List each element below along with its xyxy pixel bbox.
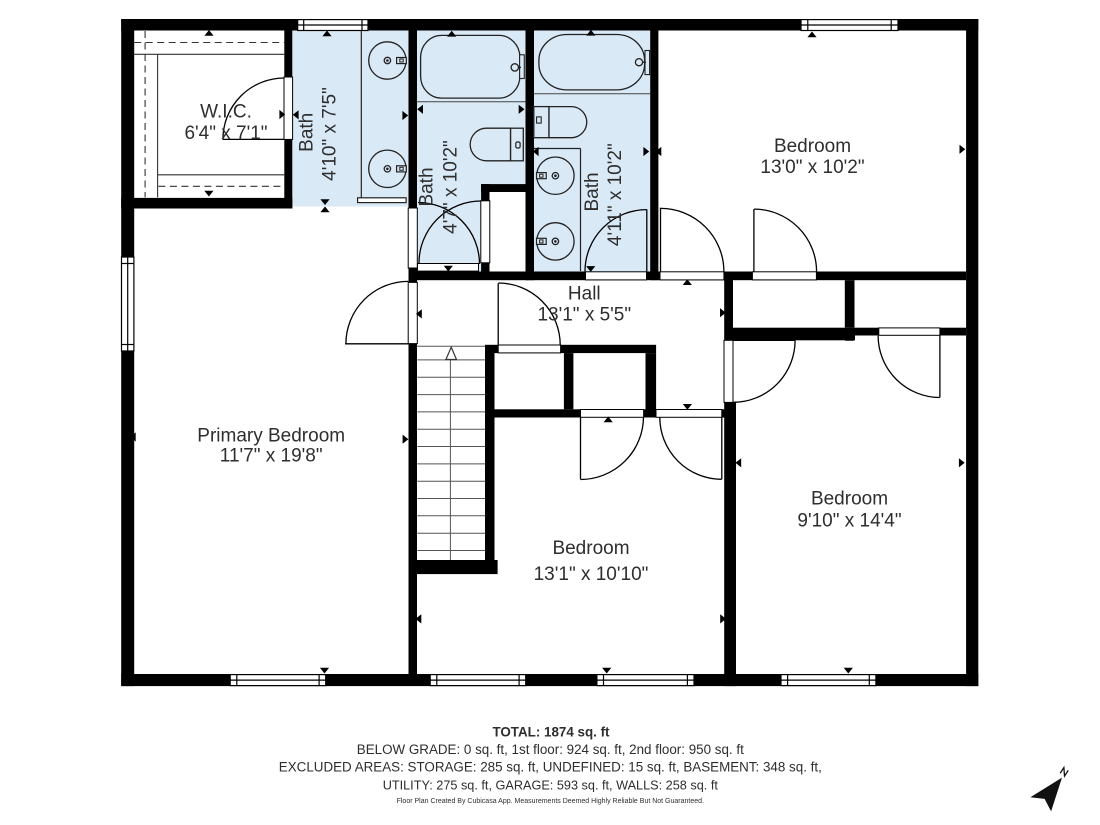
svg-text:Primary Bedroom: Primary Bedroom [197,426,345,447]
svg-text:Bedroom: Bedroom [552,538,629,559]
svg-text:EXCLUDED AREAS: STORAGE: 285 s: EXCLUDED AREAS: STORAGE: 285 sq. ft, UND… [279,760,822,775]
svg-text:Bedroom: Bedroom [811,489,888,510]
svg-text:UTILITY: 275 sq. ft, GARAGE: 5: UTILITY: 275 sq. ft, GARAGE: 593 sq. ft,… [383,778,719,792]
svg-text:11'7" x 19'8": 11'7" x 19'8" [220,446,323,467]
svg-text:Hall: Hall [568,284,601,305]
svg-text:13'0" x 10'2": 13'0" x 10'2" [760,157,864,178]
svg-text:Bath: Bath [582,172,603,211]
svg-text:BELOW GRADE: 0 sq. ft, 1st flo: BELOW GRADE: 0 sq. ft, 1st floor: 924 sq… [357,742,744,757]
svg-text:Bath: Bath [297,113,318,152]
svg-text:6'4" x 7'1": 6'4" x 7'1" [184,123,267,144]
svg-text:9'10" x 14'4": 9'10" x 14'4" [797,510,901,531]
svg-text:13'1" x 5'5": 13'1" x 5'5" [537,305,631,326]
svg-text:Bedroom: Bedroom [774,136,851,157]
svg-text:4'11" x 10'2": 4'11" x 10'2" [605,143,626,246]
svg-text:13'1" x 10'10": 13'1" x 10'10" [534,564,649,585]
svg-text:TOTAL: 1874 sq. ft: TOTAL: 1874 sq. ft [492,725,610,740]
svg-text:4'7" x 10'2": 4'7" x 10'2" [440,140,461,234]
svg-text:Floor Plan Created By Cubicasa: Floor Plan Created By Cubicasa App. Meas… [397,798,704,805]
svg-text:Bath: Bath [417,167,438,206]
svg-text:W.I.C.: W.I.C. [200,101,252,122]
svg-text:4'10" x 7'5": 4'10" x 7'5" [320,87,341,181]
